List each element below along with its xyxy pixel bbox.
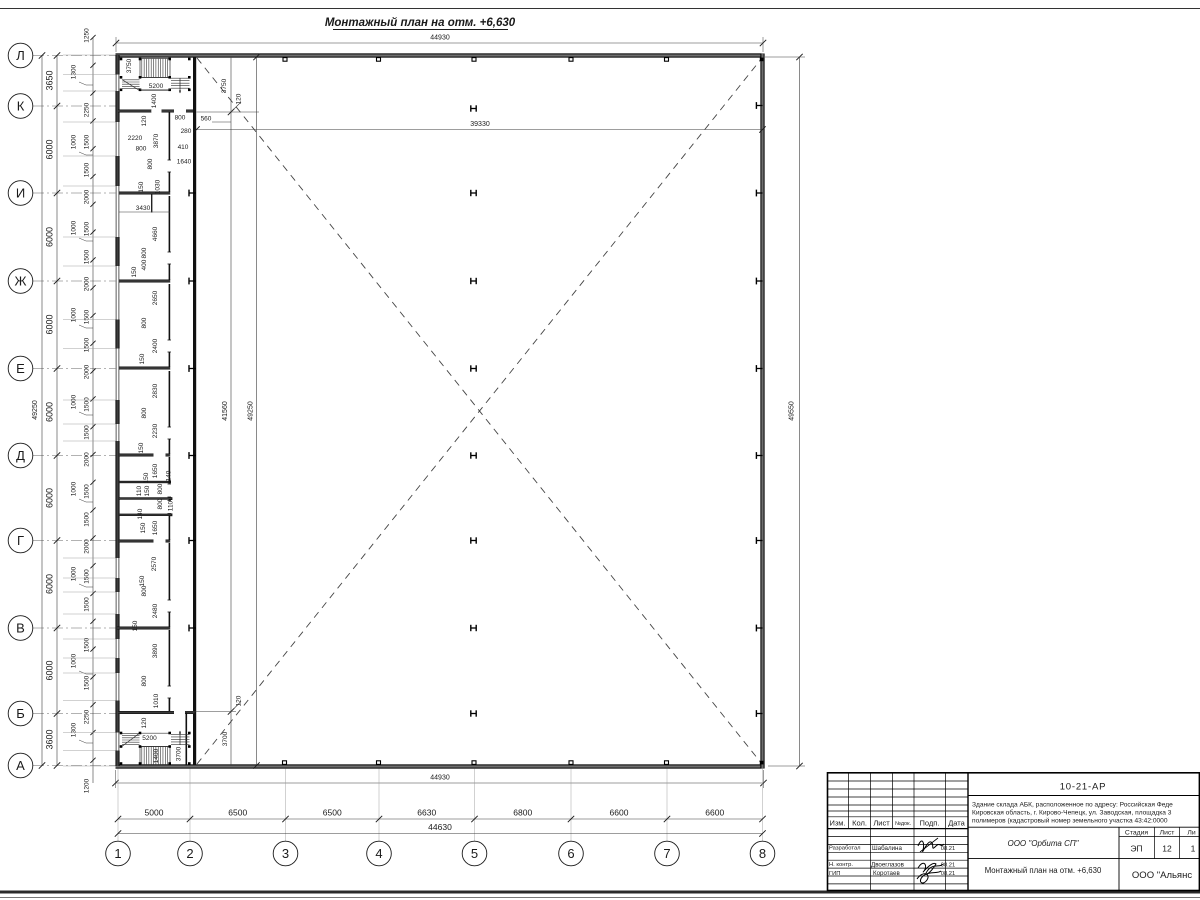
svg-text:3: 3 <box>282 846 289 861</box>
svg-text:08.21: 08.21 <box>941 863 956 869</box>
svg-text:120: 120 <box>141 717 148 728</box>
svg-text:150: 150 <box>139 353 146 364</box>
svg-text:120: 120 <box>236 695 243 706</box>
svg-text:1000: 1000 <box>71 566 78 581</box>
svg-text:Лист: Лист <box>873 819 890 828</box>
svg-text:6000: 6000 <box>45 660 55 680</box>
svg-text:7: 7 <box>663 846 670 861</box>
svg-text:49550: 49550 <box>789 401 796 421</box>
svg-text:800: 800 <box>141 675 148 686</box>
svg-text:410: 410 <box>178 144 189 151</box>
svg-text:6000: 6000 <box>45 314 55 334</box>
svg-text:ГИП: ГИП <box>829 871 840 877</box>
svg-text:6600: 6600 <box>610 808 629 818</box>
svg-text:2: 2 <box>186 846 193 861</box>
svg-text:150: 150 <box>131 266 138 277</box>
svg-text:150: 150 <box>138 181 145 192</box>
svg-text:49250: 49250 <box>32 400 39 420</box>
svg-text:1000: 1000 <box>71 394 78 409</box>
svg-text:Г: Г <box>17 533 24 548</box>
svg-text:1500: 1500 <box>84 425 91 440</box>
svg-text:280: 280 <box>181 128 192 135</box>
svg-text:1400: 1400 <box>151 93 158 108</box>
svg-text:3700: 3700 <box>176 746 183 761</box>
svg-text:800: 800 <box>157 498 164 509</box>
svg-text:800: 800 <box>141 407 148 418</box>
svg-text:1500: 1500 <box>84 337 91 352</box>
svg-text:1030: 1030 <box>155 179 162 194</box>
svg-text:1000: 1000 <box>71 220 78 235</box>
svg-text:Ли: Ли <box>1187 829 1195 836</box>
svg-text:1: 1 <box>114 846 121 861</box>
svg-text:3430: 3430 <box>136 205 151 212</box>
svg-text:44930: 44930 <box>430 35 450 42</box>
svg-text:560: 560 <box>201 116 212 123</box>
svg-text:1000: 1000 <box>71 653 78 668</box>
svg-text:400: 400 <box>141 259 148 270</box>
svg-text:1640: 1640 <box>177 159 192 166</box>
svg-text:Шабалина: Шабалина <box>872 845 902 852</box>
svg-text:2000: 2000 <box>84 189 91 204</box>
svg-text:800: 800 <box>141 317 148 328</box>
svg-text:3750: 3750 <box>221 78 228 93</box>
svg-text:08.21: 08.21 <box>941 846 956 852</box>
svg-text:Б: Б <box>16 706 25 721</box>
svg-text:41560: 41560 <box>222 401 229 421</box>
svg-text:№док.: №док. <box>895 821 912 827</box>
svg-text:1500: 1500 <box>84 134 91 149</box>
svg-text:1650: 1650 <box>152 520 159 535</box>
svg-text:полимеров (кадастровый номер з: полимеров (кадастровый номер земельного … <box>972 817 1168 825</box>
svg-text:6600: 6600 <box>705 808 724 818</box>
svg-text:08.21: 08.21 <box>941 871 956 877</box>
svg-text:120: 120 <box>236 93 243 104</box>
svg-text:2230: 2230 <box>152 423 159 438</box>
svg-text:ООО "Альянс: ООО "Альянс <box>1132 870 1192 881</box>
svg-text:1650: 1650 <box>152 463 159 478</box>
svg-text:1000: 1000 <box>71 481 78 496</box>
svg-text:12: 12 <box>1162 844 1172 854</box>
svg-text:1500: 1500 <box>84 637 91 652</box>
svg-text:2570: 2570 <box>151 556 158 571</box>
svg-text:4660: 4660 <box>152 226 159 241</box>
svg-text:6500: 6500 <box>323 808 342 818</box>
svg-text:2220: 2220 <box>128 135 143 142</box>
svg-text:Н. контр.: Н. контр. <box>829 862 853 868</box>
svg-text:140: 140 <box>137 508 144 519</box>
svg-text:49250: 49250 <box>248 401 255 421</box>
svg-text:1400: 1400 <box>153 748 160 763</box>
svg-text:Монтажный план на отм. +6,630: Монтажный план на отм. +6,630 <box>325 17 516 29</box>
svg-text:А: А <box>16 758 25 773</box>
svg-text:1500: 1500 <box>84 309 91 324</box>
svg-text:6000: 6000 <box>45 488 55 508</box>
svg-text:2250: 2250 <box>84 709 91 724</box>
svg-text:6500: 6500 <box>228 808 247 818</box>
svg-text:2650: 2650 <box>152 290 159 305</box>
svg-text:1010: 1010 <box>153 693 160 708</box>
svg-text:К: К <box>17 99 25 114</box>
svg-text:6000: 6000 <box>45 139 55 159</box>
svg-text:Дата: Дата <box>948 819 965 828</box>
svg-text:1500: 1500 <box>84 221 91 236</box>
svg-text:800: 800 <box>141 585 148 596</box>
svg-text:Ж: Ж <box>14 274 26 289</box>
svg-text:1500: 1500 <box>84 512 91 527</box>
svg-text:ЭП: ЭП <box>1130 844 1142 854</box>
svg-text:5: 5 <box>471 846 478 861</box>
svg-text:1500: 1500 <box>84 162 91 177</box>
svg-text:4: 4 <box>375 846 382 861</box>
svg-text:В: В <box>16 621 25 636</box>
svg-text:Л: Л <box>16 48 25 63</box>
svg-text:8: 8 <box>759 846 766 861</box>
svg-text:6800: 6800 <box>513 808 532 818</box>
svg-text:5000: 5000 <box>145 808 164 818</box>
svg-text:Подп.: Подп. <box>920 819 940 828</box>
svg-text:Д: Д <box>16 448 25 463</box>
svg-text:1000: 1000 <box>71 307 78 322</box>
svg-text:Разработал: Разработал <box>829 846 861 852</box>
svg-text:2400: 2400 <box>152 338 159 353</box>
svg-text:10-21-АР: 10-21-АР <box>1060 782 1107 793</box>
svg-text:110: 110 <box>168 500 175 511</box>
svg-text:150: 150 <box>144 485 151 496</box>
svg-text:150: 150 <box>140 522 147 533</box>
svg-text:Кол.: Кол. <box>852 819 867 828</box>
svg-text:800: 800 <box>157 483 164 494</box>
svg-text:2250: 2250 <box>84 102 91 117</box>
svg-text:Стадия: Стадия <box>1125 829 1148 836</box>
svg-text:44630: 44630 <box>428 822 452 832</box>
svg-text:110: 110 <box>136 485 143 496</box>
svg-text:1500: 1500 <box>84 597 91 612</box>
svg-text:150: 150 <box>143 472 150 483</box>
svg-text:6000: 6000 <box>45 227 55 247</box>
svg-text:3890: 3890 <box>152 643 159 658</box>
svg-text:140: 140 <box>166 470 173 481</box>
svg-text:800: 800 <box>141 247 148 258</box>
svg-text:Кировская область, г. Кирово-Ч: Кировская область, г. Кирово-Чепецк, ул.… <box>972 809 1172 817</box>
svg-text:3750: 3750 <box>126 58 133 73</box>
svg-text:ООО "Орбита СП": ООО "Орбита СП" <box>1007 839 1079 848</box>
svg-text:150: 150 <box>139 575 146 586</box>
svg-text:39330: 39330 <box>470 121 490 128</box>
svg-text:5200: 5200 <box>149 83 164 90</box>
svg-text:120: 120 <box>141 115 148 126</box>
svg-text:2480: 2480 <box>152 603 159 618</box>
svg-text:Изм.: Изм. <box>829 819 845 828</box>
svg-text:1500: 1500 <box>84 484 91 499</box>
svg-text:1500: 1500 <box>84 397 91 412</box>
svg-text:Коротаев: Коротаев <box>873 870 900 877</box>
svg-text:6630: 6630 <box>417 808 436 818</box>
svg-text:800: 800 <box>175 115 186 122</box>
svg-text:1000: 1000 <box>71 134 78 149</box>
svg-text:И: И <box>16 186 25 201</box>
svg-text:150: 150 <box>132 620 139 631</box>
svg-text:2830: 2830 <box>152 383 159 398</box>
svg-text:150: 150 <box>138 442 145 453</box>
svg-text:44930: 44930 <box>430 775 450 782</box>
svg-text:800: 800 <box>136 146 147 153</box>
svg-text:1300: 1300 <box>71 722 78 737</box>
svg-text:3600: 3600 <box>45 729 55 749</box>
svg-text:3870: 3870 <box>153 133 160 148</box>
svg-text:3650: 3650 <box>45 70 55 90</box>
svg-text:800: 800 <box>147 158 154 169</box>
svg-text:Е: Е <box>16 361 25 376</box>
svg-text:2000: 2000 <box>84 276 91 291</box>
svg-text:5200: 5200 <box>142 735 157 742</box>
svg-text:Здание склада АБК, расположенн: Здание склада АБК, расположенное по адре… <box>972 801 1173 809</box>
svg-text:2000: 2000 <box>84 364 91 379</box>
svg-text:2000: 2000 <box>84 452 91 467</box>
svg-text:Лист: Лист <box>1160 829 1175 836</box>
svg-text:1: 1 <box>1191 844 1196 854</box>
svg-text:3700: 3700 <box>222 731 229 746</box>
svg-text:6000: 6000 <box>45 574 55 594</box>
svg-text:6000: 6000 <box>45 402 55 422</box>
svg-text:1500: 1500 <box>84 569 91 584</box>
svg-text:Монтажный план на отм. +6,630: Монтажный план на отм. +6,630 <box>985 866 1102 875</box>
svg-text:2000: 2000 <box>84 539 91 554</box>
svg-text:1250: 1250 <box>84 28 91 43</box>
svg-text:1500: 1500 <box>84 675 91 690</box>
svg-text:1500: 1500 <box>84 249 91 264</box>
svg-text:Двоеглазов: Двоеглазов <box>871 862 905 869</box>
svg-text:6: 6 <box>567 846 574 861</box>
svg-text:1300: 1300 <box>71 64 78 79</box>
svg-text:1200: 1200 <box>84 778 91 793</box>
